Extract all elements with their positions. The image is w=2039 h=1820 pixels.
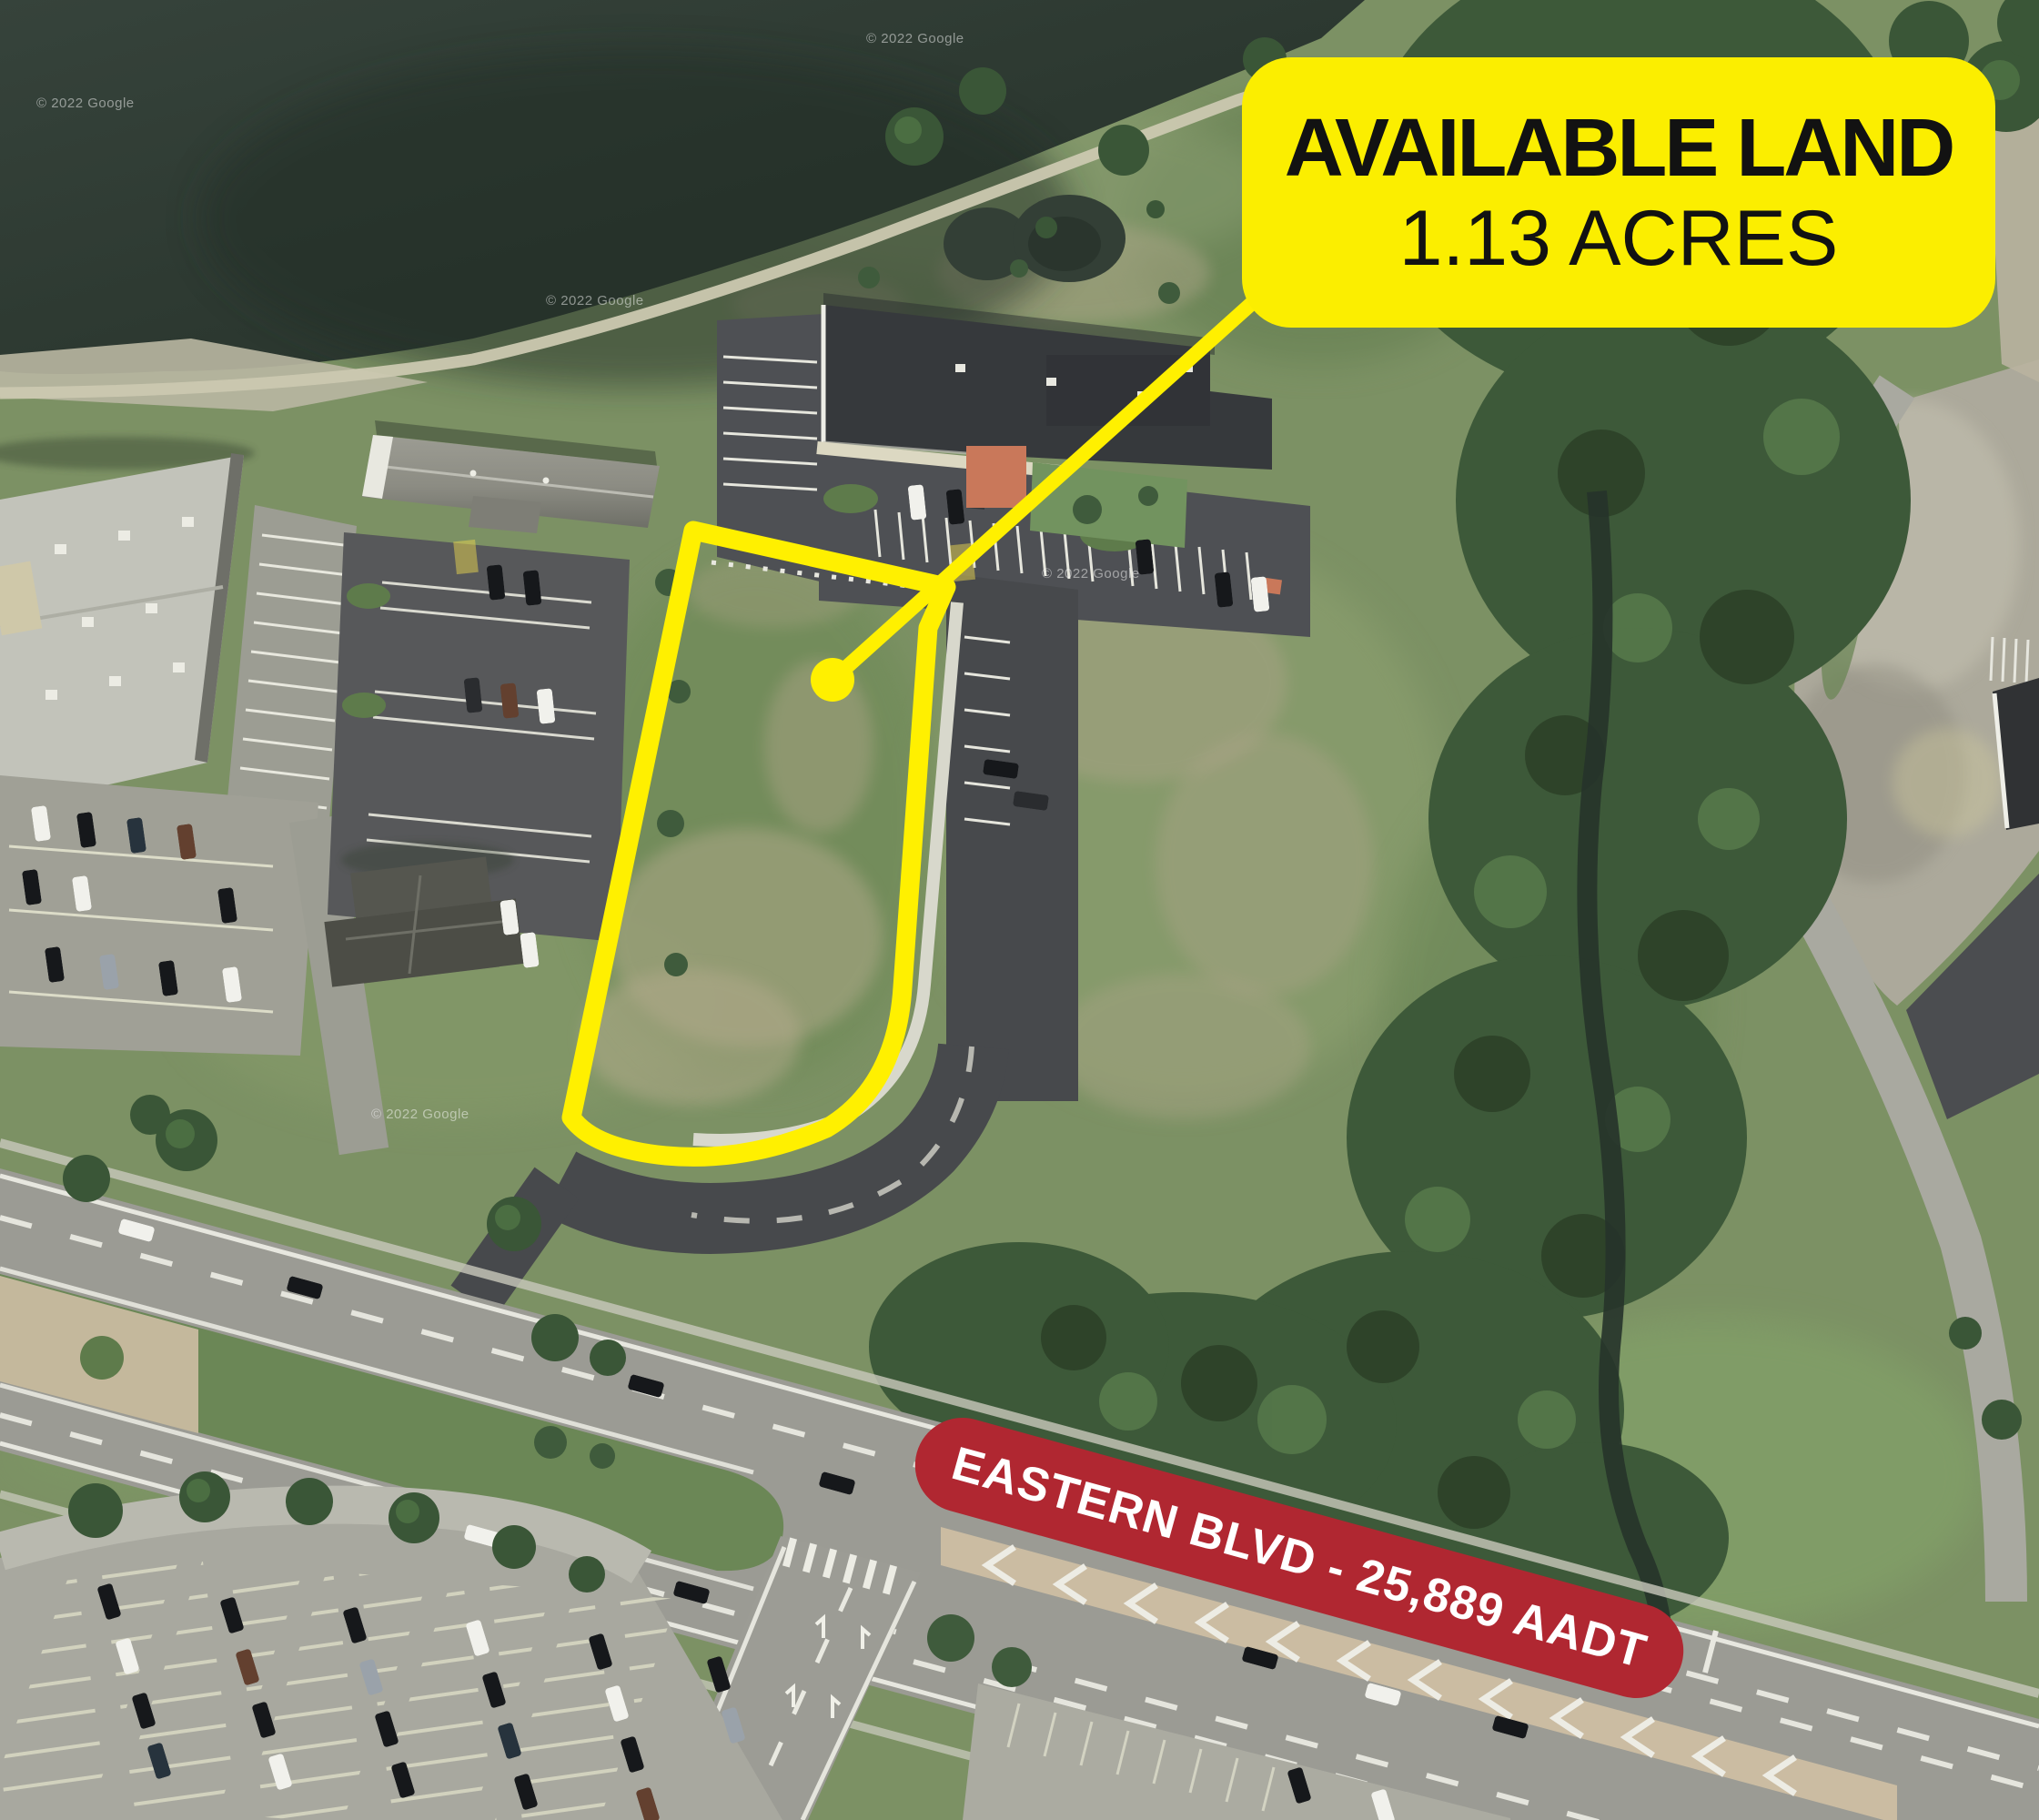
google-watermark: © 2022 Google: [371, 1107, 469, 1122]
left-parking-lot: [0, 775, 318, 1056]
google-watermark: © 2022 Google: [546, 293, 644, 308]
callout-title: AVAILABLE LAND: [1285, 103, 1953, 195]
orange-plaza: [966, 446, 1026, 508]
aerial-site-map: AVAILABLE LAND 1.13 ACRES EASTERN BLVD -…: [0, 0, 2039, 1820]
google-watermark: © 2022 Google: [1042, 566, 1140, 581]
callout-subtitle: 1.13 ACRES: [1399, 195, 1839, 282]
house-building: [324, 842, 539, 987]
google-watermark: © 2022 Google: [866, 31, 964, 46]
available-land-callout: AVAILABLE LAND 1.13 ACRES: [1242, 57, 1995, 328]
parcel-marker-dot: [811, 658, 854, 702]
google-watermark: © 2022 Google: [36, 96, 135, 111]
